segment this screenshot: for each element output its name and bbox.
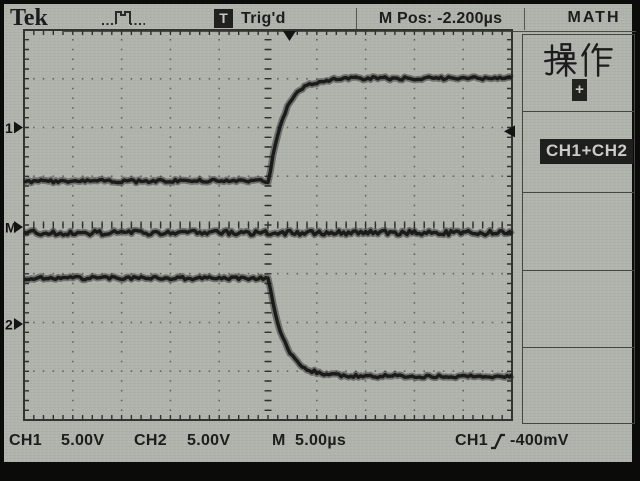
ch1-scale-readout: 5.00V (61, 432, 104, 450)
lcd-screen: Tek T Trig'd M Pos: -2.200µs MATH (4, 4, 632, 462)
softkey-option-source[interactable]: CH1+CH2 (522, 111, 635, 193)
m-pos-text: M Pos: -2.200µs (379, 10, 502, 27)
ch1-label: CH1 (9, 432, 42, 450)
timebase-readout: 5.00µs (295, 432, 346, 450)
softkey-option-blank-1[interactable] (522, 192, 635, 271)
tek-logo: Tek (10, 5, 48, 32)
softkey-option-blank-3[interactable] (522, 347, 635, 424)
timebase-label: M (272, 432, 286, 450)
operation-plus-badge: + (572, 79, 587, 101)
rising-edge-icon (489, 432, 507, 451)
horizontal-position-readout: M Pos: -2.200µs (356, 8, 525, 30)
trigger-status-text: Trig'd (241, 10, 286, 28)
softkey-option-blank-2[interactable] (522, 270, 635, 348)
operation-cjk-glyphs (543, 42, 615, 78)
trigger-source-readout: CH1 (455, 432, 488, 450)
softkey-menu: + CH1+CH2 (522, 34, 636, 424)
ch2-label: CH2 (134, 432, 167, 450)
menu-title: MATH (554, 9, 634, 27)
softkey-option-operation[interactable]: + (522, 34, 635, 112)
trigger-level-readout: -400mV (510, 432, 569, 450)
ch2-scale-readout: 5.00V (187, 432, 230, 450)
pulse-waveform-icon (99, 9, 157, 29)
topbar-divider (64, 31, 636, 32)
trigger-state-badge: T (214, 9, 233, 28)
selected-source-label: CH1+CH2 (540, 139, 633, 164)
oscilloscope-screenshot: Tek T Trig'd M Pos: -2.200µs MATH (0, 0, 640, 481)
